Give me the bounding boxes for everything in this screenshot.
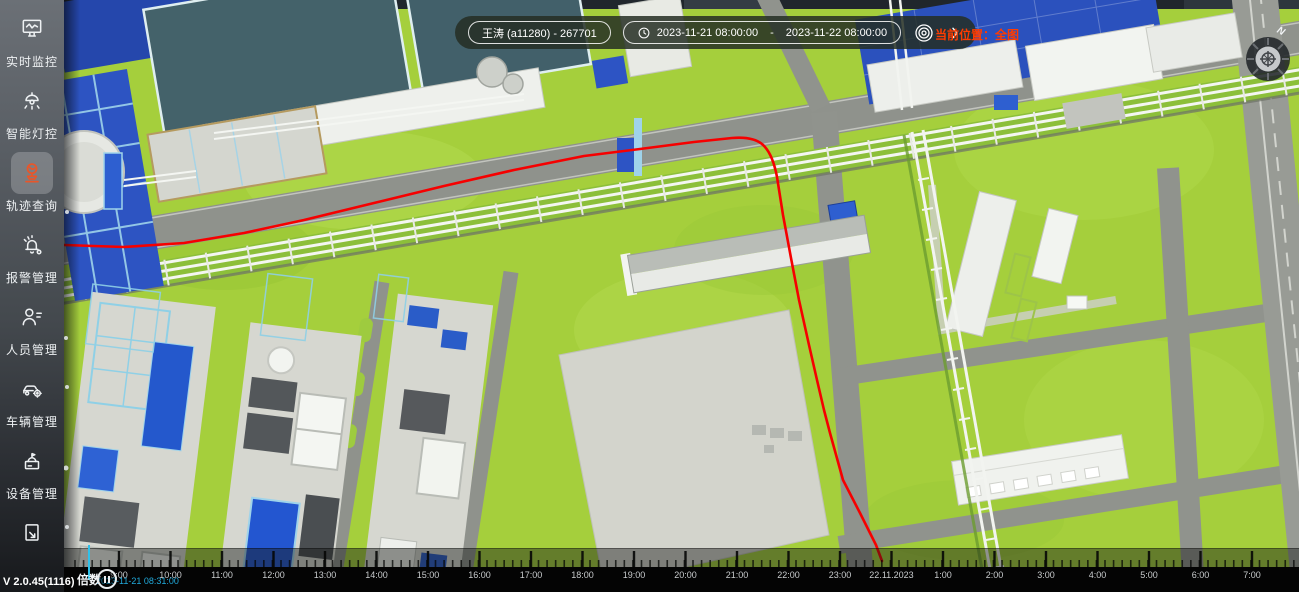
- timeline-label: 17:00: [520, 570, 543, 580]
- trajectory-query-icon: [11, 152, 53, 194]
- timeline-label: 23:00: [829, 570, 852, 580]
- date-start-value: 2023-11-21 08:00:00: [657, 27, 758, 39]
- sidebar-item-trajectory-query[interactable]: 轨迹查询: [0, 152, 64, 224]
- app-window: { "sidebar": { "items": [ {"label": "实时监…: [0, 0, 1299, 592]
- current-location-label: 当前位置：全图: [935, 26, 1019, 43]
- industrial-strips: [64, 274, 493, 592]
- timeline-label: 20:00: [674, 570, 697, 580]
- left-edge-shadow: [64, 0, 80, 592]
- timeline-label-band: 9:0010:0011:0012:0013:0014:0015:0016:001…: [64, 567, 1299, 592]
- timeline-label: 7:00: [1243, 570, 1261, 580]
- sidebar-item-smart-light[interactable]: 智能灯控: [0, 80, 64, 152]
- person-selector[interactable]: 王涛 (a11280) - 267701: [468, 21, 611, 44]
- timeline-label: 16:00: [468, 570, 491, 580]
- query-toolbar: 王涛 (a11280) - 267701 2023-11-21 08:00:00…: [455, 16, 976, 49]
- timeline-label: 13:00: [314, 570, 337, 580]
- sidebar-item-realtime-monitor[interactable]: 实时监控: [0, 8, 64, 80]
- sidebar-item-label: 智能灯控: [6, 125, 58, 142]
- locate-target-button[interactable]: [913, 22, 935, 44]
- date-end-value: 2023-11-22 08:00:00: [786, 27, 887, 39]
- timeline-label: 1:00: [934, 570, 952, 580]
- timeline-ruler[interactable]: [64, 548, 1299, 568]
- smart-light-icon: [11, 80, 53, 122]
- personnel-manage-icon: [11, 296, 53, 338]
- sidebar-item-personnel-manage[interactable]: 人员管理: [0, 296, 64, 368]
- pause-button[interactable]: [97, 569, 117, 589]
- sidebar-item-label: 报警管理: [6, 269, 58, 286]
- timeline-label: 3:00: [1037, 570, 1055, 580]
- timeline-label: 6:00: [1192, 570, 1210, 580]
- sidebar-item-label: 人员管理: [6, 341, 58, 358]
- sidebar-nav: 实时监控 智能灯控 轨迹查询 报警管理 人员管理: [0, 0, 64, 592]
- timeline-label: 15:00: [417, 570, 440, 580]
- sidebar-item-map-export[interactable]: [0, 512, 64, 584]
- timeline-label: 18:00: [571, 570, 594, 580]
- sidebar-item-vehicle-manage[interactable]: 车辆管理: [0, 368, 64, 440]
- sidebar-item-label: 实时监控: [6, 53, 58, 70]
- timeline-label: 11:00: [211, 570, 233, 580]
- timeline-label: 22:00: [777, 570, 800, 580]
- date-separator: -: [770, 27, 774, 39]
- person-selector-value: 王涛 (a11280) - 267701: [482, 25, 597, 41]
- sidebar-item-label: 轨迹查询: [6, 197, 58, 214]
- clock-icon: [637, 26, 651, 40]
- sidebar-item-device-manage[interactable]: 设备管理: [0, 440, 64, 512]
- timeline-label: 4:00: [1089, 570, 1107, 580]
- date-range-picker[interactable]: 2023-11-21 08:00:00 - 2023-11-22 08:00:0…: [623, 21, 901, 44]
- version-label: V 2.0.45(1116): [3, 576, 75, 588]
- timeline-label: 12:00: [262, 570, 285, 580]
- sidebar-item-label: 设备管理: [6, 485, 58, 502]
- realtime-monitor-icon: [11, 8, 53, 50]
- timeline-label: 19:00: [623, 570, 646, 580]
- compass-control[interactable]: [1242, 33, 1294, 85]
- vehicle-manage-icon: [11, 368, 53, 410]
- sidebar-item-alarm-manage[interactable]: 报警管理: [0, 224, 64, 296]
- sidebar-item-label: 车辆管理: [6, 413, 58, 430]
- map-export-icon: [11, 512, 53, 554]
- timeline-label: 5:00: [1140, 570, 1158, 580]
- timeline-label: 14:00: [365, 570, 388, 580]
- alarm-manage-icon: [11, 224, 53, 266]
- device-manage-icon: [11, 440, 53, 482]
- map-canvas[interactable]: [64, 0, 1299, 592]
- timeline-label: 2:00: [986, 570, 1004, 580]
- timeline-label: 21:00: [726, 570, 749, 580]
- timeline-label: 22.11.2023: [869, 570, 913, 580]
